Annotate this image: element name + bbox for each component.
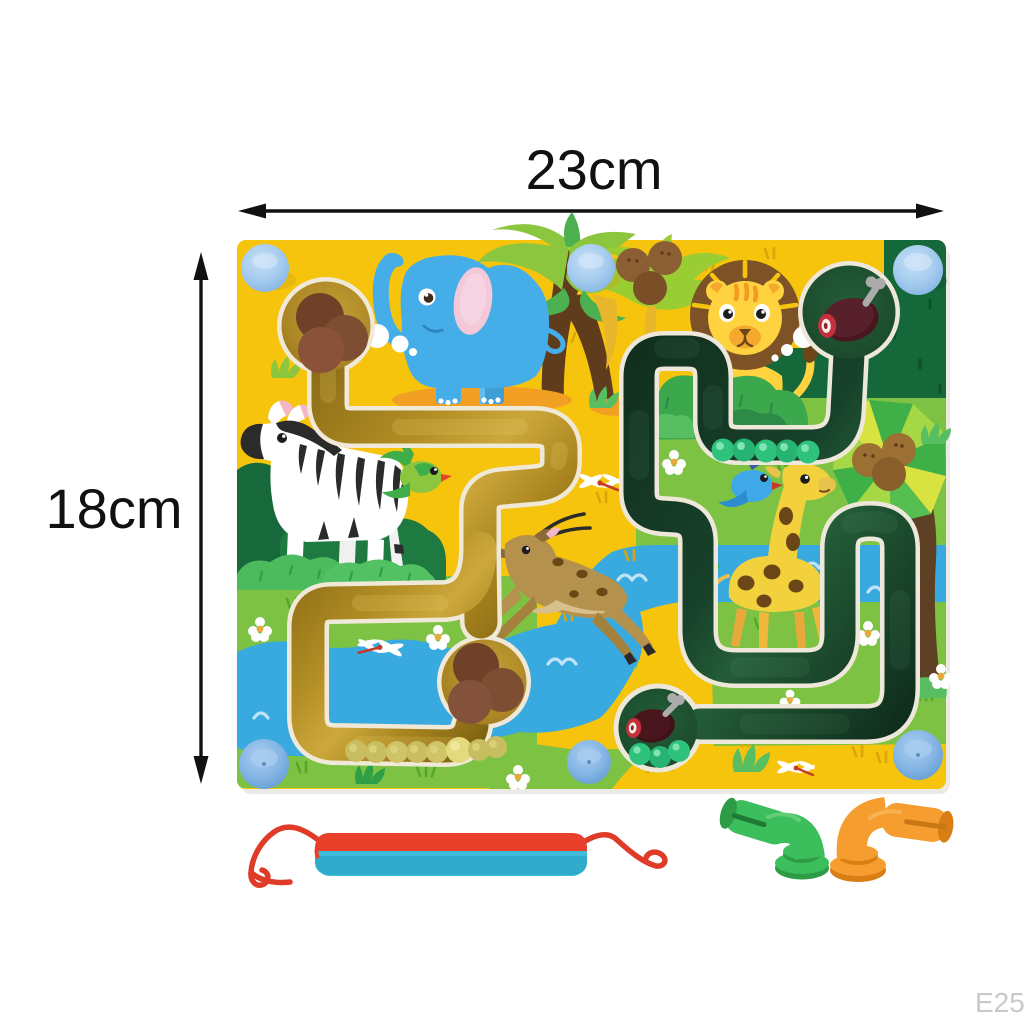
svg-text:23cm: 23cm <box>526 138 663 201</box>
svg-text:18cm: 18cm <box>46 477 183 540</box>
svg-text:E25: E25 <box>975 987 1024 1018</box>
